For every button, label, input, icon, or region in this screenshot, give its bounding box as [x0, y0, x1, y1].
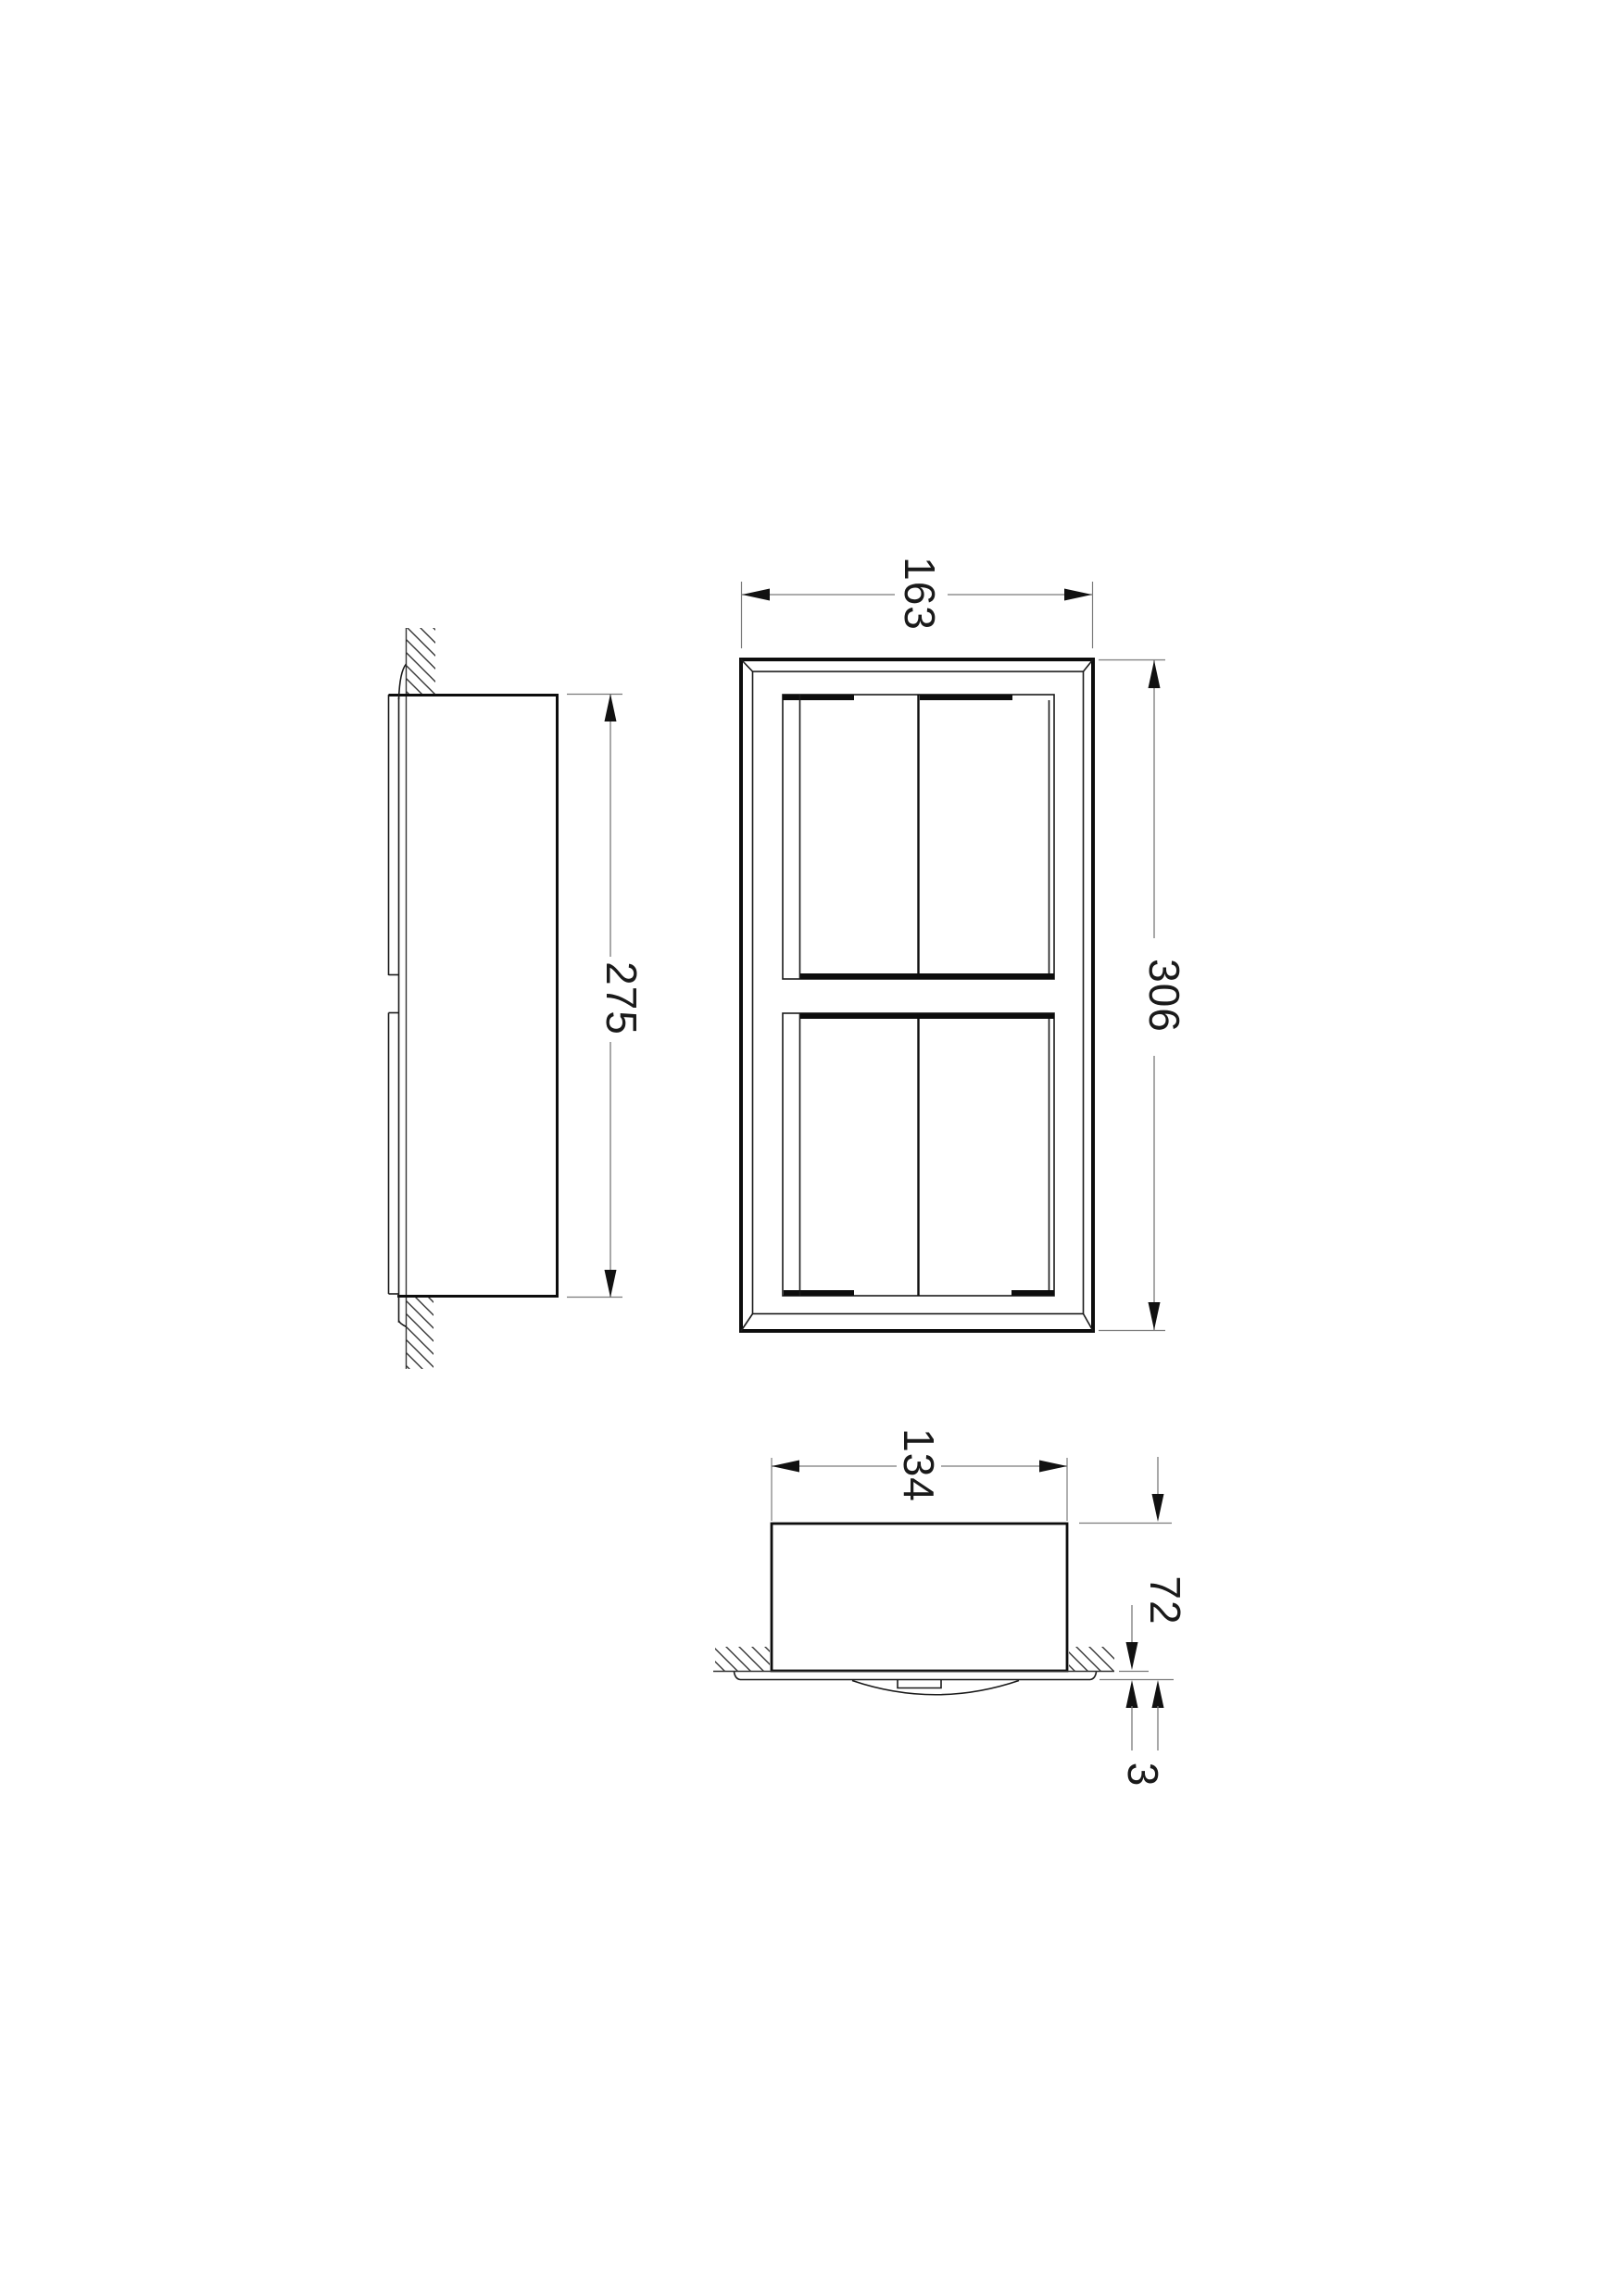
technical-drawing-canvas: 275 — [0, 0, 1621, 2296]
wall-hatch-right — [1069, 1647, 1114, 1671]
dimension-275: 275 — [567, 694, 646, 1298]
arrowhead-up — [1149, 660, 1161, 688]
arrowhead-right — [1064, 589, 1092, 601]
arrowhead-left — [742, 589, 770, 601]
dimension-306: 306 — [1099, 660, 1188, 1331]
arrowhead-down — [1126, 1642, 1138, 1670]
bottom-view: 134 72 3 — [713, 1428, 1189, 1787]
front-view: 163 306 — [741, 557, 1188, 1331]
dimension-label-side-height: 275 — [597, 961, 646, 1035]
frame-corner-bevels — [741, 659, 1093, 1331]
flange-profile — [399, 664, 407, 1327]
dimension-3: 3 — [1100, 1605, 1174, 1787]
dimension-134: 134 — [772, 1428, 1067, 1521]
dimension-label-recess-depth: 72 — [1141, 1575, 1189, 1625]
arrowhead-down — [1152, 1494, 1164, 1522]
arrowhead-up — [1152, 1680, 1164, 1708]
arrowhead-left — [772, 1461, 799, 1473]
paper-panel-2 — [783, 1013, 1054, 1296]
door-edge-strips — [389, 695, 399, 1294]
dimension-label-flange-offset: 3 — [1119, 1763, 1167, 1788]
frame-outer — [741, 659, 1093, 1331]
wall-hatch-left — [715, 1647, 770, 1671]
wall-hatch-top — [407, 628, 436, 694]
side-view: 275 — [389, 628, 647, 1369]
recess-box-plan — [772, 1524, 1067, 1671]
wall-hatch-bottom — [407, 1298, 434, 1369]
flange-arc-detail — [852, 1680, 1019, 1695]
arrowhead-down — [1149, 1302, 1161, 1330]
dimension-label-plan-width: 134 — [895, 1428, 943, 1502]
flange-face — [735, 1672, 1097, 1680]
recess-box-profile — [389, 694, 559, 1298]
paper-panel-1 — [783, 695, 1054, 979]
dimension-label-front-width: 163 — [896, 557, 944, 631]
arrowhead-down — [605, 1270, 617, 1298]
dimension-163: 163 — [742, 557, 1093, 648]
arrowhead-up — [1126, 1680, 1138, 1708]
dimension-label-front-height: 306 — [1140, 959, 1188, 1033]
arrowhead-right — [1039, 1461, 1067, 1473]
arrowhead-up — [605, 694, 617, 721]
